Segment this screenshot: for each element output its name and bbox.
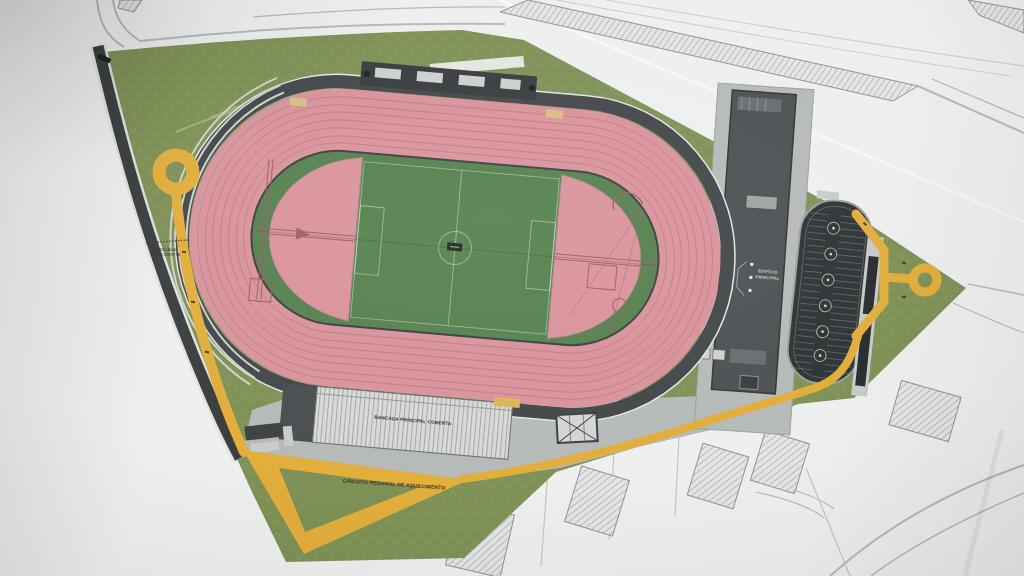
- bench-icon: [182, 251, 186, 253]
- bench-icon: [902, 296, 906, 298]
- kiosk: [556, 413, 597, 443]
- door-marker: [748, 289, 751, 292]
- building-rooflight: [746, 195, 777, 209]
- canopy-pad: [546, 109, 564, 118]
- service-structure: [713, 349, 726, 360]
- door-marker: [750, 263, 753, 266]
- north-stand-bay: [500, 78, 521, 90]
- building-rooflight: [729, 349, 766, 365]
- canopy-pad: [290, 97, 308, 106]
- building-annex: [740, 375, 759, 389]
- door-marker: [749, 276, 752, 279]
- site-plan-photo: EDIFÍCIO PRINCIPAL: [0, 0, 1024, 576]
- open-stand-label-2: DESCOBERTA: [152, 253, 180, 257]
- open-stand-label-1: BANCADA: [156, 248, 176, 252]
